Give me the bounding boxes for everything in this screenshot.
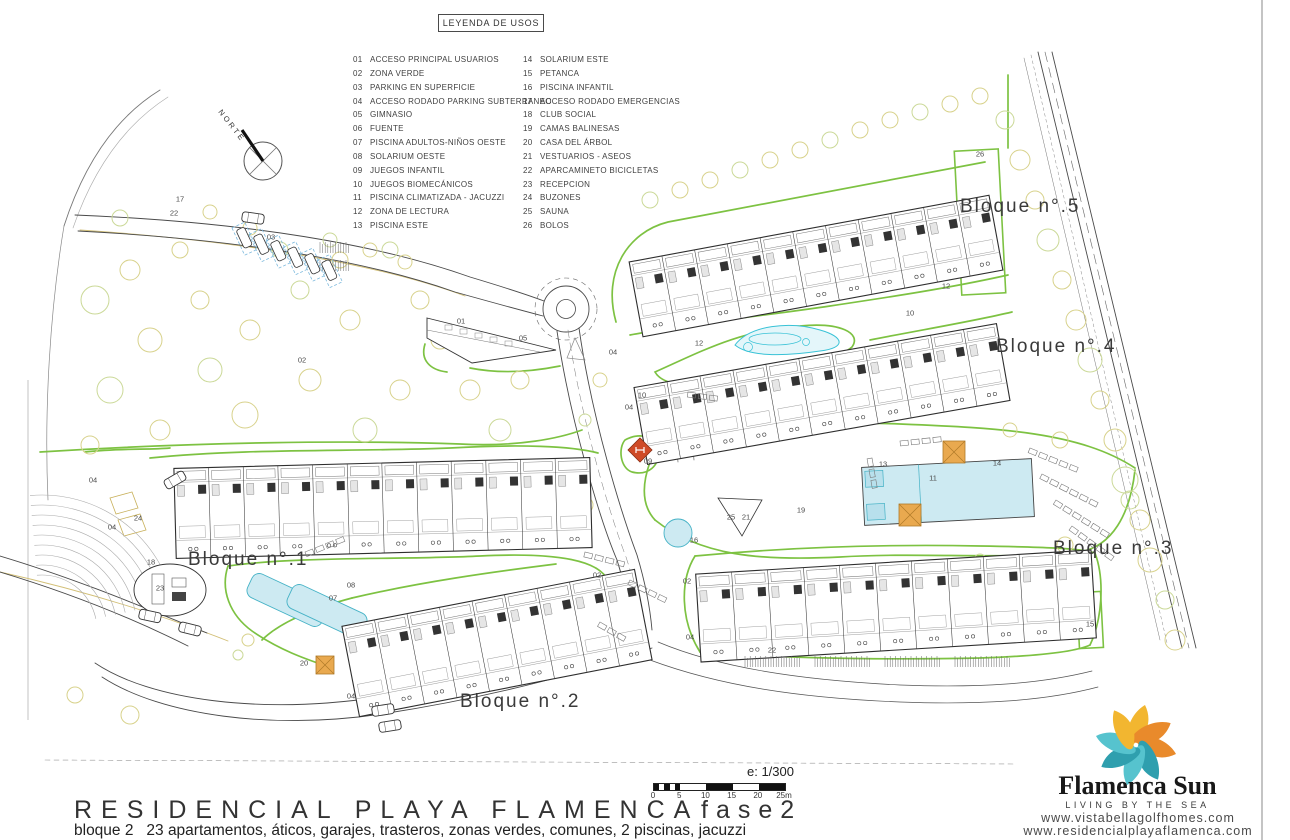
scale-label: e: 1/300 bbox=[718, 764, 794, 779]
block-label: Bloque n°.1 bbox=[188, 549, 308, 571]
plan-marker-09: 09 bbox=[644, 457, 652, 466]
plan-marker-22: 22 bbox=[768, 646, 776, 655]
plan-marker-02: 02 bbox=[593, 571, 601, 580]
block-label: Bloque n°.3 bbox=[1053, 538, 1173, 560]
pool-infantil bbox=[664, 519, 692, 547]
legend-item: 02ZONA VERDE bbox=[353, 67, 518, 81]
legend-item: 04ACCESO RODADO PARKING SUBTERRANEO bbox=[353, 95, 518, 109]
project-title: RESIDENCIAL PLAYA FLAMENCA bbox=[74, 796, 699, 825]
shade-square bbox=[899, 504, 921, 526]
legend-item: 19CAMAS BALINESAS bbox=[523, 122, 673, 136]
legend-column-2: 14SOLARIUM ESTE15PETANCA16PISCINA INFANT… bbox=[523, 53, 673, 233]
legend-item: 07PISCINA ADULTOS-NIÑOS OESTE bbox=[353, 136, 518, 150]
legend-item: 18CLUB SOCIAL bbox=[523, 108, 673, 122]
legend-item: 25SAUNA bbox=[523, 205, 673, 219]
plan-marker-22: 22 bbox=[170, 209, 178, 218]
pool-este bbox=[862, 459, 1035, 526]
building-bloque-1 bbox=[174, 458, 592, 559]
plan-marker-20: 20 bbox=[300, 659, 308, 668]
plan-marker-25: 25 bbox=[727, 513, 735, 522]
plan-marker-24: 24 bbox=[134, 514, 142, 523]
legend-item: 22APARCAMINETO BICICLETAS bbox=[523, 164, 673, 178]
plan-marker-16: 16 bbox=[690, 536, 698, 545]
plan-marker-07: 07 bbox=[329, 594, 337, 603]
logo-tagline: LIVING BY THE SEA bbox=[1040, 800, 1235, 810]
building-reception bbox=[134, 564, 206, 616]
plan-marker-04: 04 bbox=[347, 692, 355, 701]
plan-marker-01: 01 bbox=[457, 317, 465, 326]
legend-item: 26BOLOS bbox=[523, 219, 673, 233]
legend-item: 16PISCINA INFANTIL bbox=[523, 81, 673, 95]
project-phase: fase2 bbox=[701, 796, 802, 825]
legend-item: 08SOLARIUM OESTE bbox=[353, 150, 518, 164]
plan-marker-19: 19 bbox=[797, 506, 805, 515]
plan-marker-21: 21 bbox=[742, 513, 750, 522]
north-arrow-icon: NORTE bbox=[216, 108, 282, 180]
legend-title: LEYENDA DE USOS bbox=[438, 14, 544, 32]
site-plan-page: NORTE LEYENDA DE USOS 01ACCESO PRINCIPAL… bbox=[0, 0, 1290, 840]
plan-marker-04: 04 bbox=[609, 348, 617, 357]
building-entrance-gym bbox=[427, 318, 556, 363]
legend-item: 03PARKING EN SUPERFICIE bbox=[353, 81, 518, 95]
legend-item: 21VESTUARIOS - ASEOS bbox=[523, 150, 673, 164]
legend-item: 06FUENTE bbox=[353, 122, 518, 136]
plan-marker-13: 13 bbox=[879, 460, 887, 469]
plan-marker-10: 10 bbox=[638, 391, 646, 400]
legend-item: 12ZONA DE LECTURA bbox=[353, 205, 518, 219]
legend-item: 01ACCESO PRINCIPAL USUARIOS bbox=[353, 53, 518, 67]
plan-marker-15: 15 bbox=[1086, 620, 1094, 629]
logo-url-2: www.residencialplayaflamenca.com bbox=[1013, 824, 1263, 838]
legend-item: 23RECEPCION bbox=[523, 178, 673, 192]
legend-item: 24BUZONES bbox=[523, 191, 673, 205]
scale-bar bbox=[653, 783, 786, 791]
plan-marker-04: 04 bbox=[108, 523, 116, 532]
plan-marker-17: 17 bbox=[176, 195, 184, 204]
legend-item: 11PISCINA CLIMATIZADA - JACUZZI bbox=[353, 191, 518, 205]
plan-marker-02: 02 bbox=[298, 356, 306, 365]
legend-item: 13PISCINA ESTE bbox=[353, 219, 518, 233]
shade-square bbox=[943, 441, 965, 463]
plan-marker-05: 05 bbox=[519, 334, 527, 343]
plan-marker-08: 08 bbox=[347, 581, 355, 590]
building-bloque-5 bbox=[629, 195, 1003, 336]
legend-item: 09JUEGOS INFANTIL bbox=[353, 164, 518, 178]
legend-item: 05GIMNASIO bbox=[353, 108, 518, 122]
plan-marker-04: 04 bbox=[686, 633, 694, 642]
plan-marker-12: 12 bbox=[942, 282, 950, 291]
legend-item: 14SOLARIUM ESTE bbox=[523, 53, 673, 67]
plan-marker-10: 10 bbox=[906, 309, 914, 318]
block-label: Bloque n°.4 bbox=[996, 336, 1116, 358]
plan-marker-03: 03 bbox=[267, 233, 275, 242]
plan-marker-26: 26 bbox=[976, 150, 984, 159]
project-subtitle: bloque 2 23 apartamentos, áticos, garaje… bbox=[74, 822, 746, 840]
legend-column-1: 01ACCESO PRINCIPAL USUARIOS02ZONA VERDE0… bbox=[353, 53, 518, 233]
tree-house bbox=[316, 656, 334, 674]
legend-item: 15PETANCA bbox=[523, 67, 673, 81]
legend-item: 17ACCESO RODADO EMERGENCIAS bbox=[523, 95, 673, 109]
block-label: Bloque n°.2 bbox=[460, 691, 580, 713]
plan-marker-14: 14 bbox=[993, 459, 1001, 468]
logo-name: Flamenca Sun bbox=[1040, 771, 1235, 801]
legend-item: 20CASA DEL ÁRBOL bbox=[523, 136, 673, 150]
svg-text:NORTE: NORTE bbox=[216, 108, 247, 144]
plan-marker-12: 12 bbox=[695, 339, 703, 348]
plan-marker-18: 18 bbox=[147, 558, 155, 567]
plan-marker-02: 02 bbox=[683, 577, 691, 586]
plan-marker-23: 23 bbox=[156, 584, 164, 593]
plan-marker-11: 11 bbox=[929, 474, 937, 483]
plan-marker-04: 04 bbox=[89, 476, 97, 485]
block-label: Bloque n°.5 bbox=[960, 196, 1080, 218]
plan-marker-04: 04 bbox=[625, 403, 633, 412]
building-bloque-3 bbox=[696, 550, 1097, 662]
car bbox=[178, 621, 202, 636]
car bbox=[378, 719, 401, 732]
logo-url-1: www.vistabellagolfhomes.com bbox=[1013, 811, 1263, 825]
legend-item: 10JUEGOS BIOMECÁNICOS bbox=[353, 178, 518, 192]
